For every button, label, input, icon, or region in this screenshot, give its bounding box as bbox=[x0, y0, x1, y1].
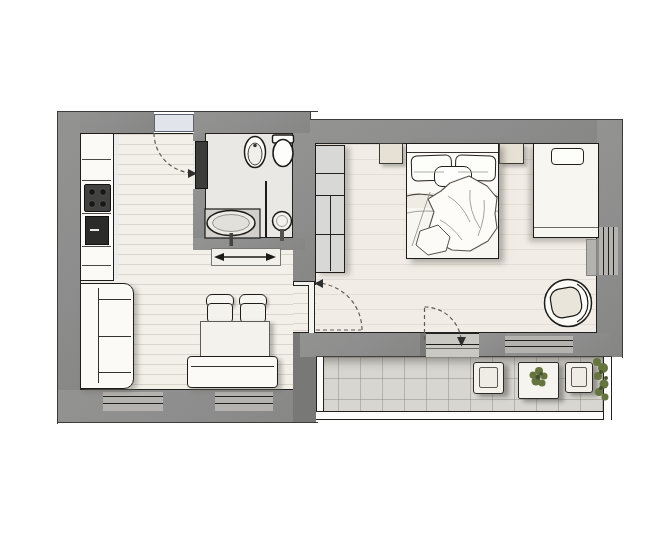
wall-south-bedroom-a bbox=[300, 333, 420, 357]
cooktop bbox=[84, 184, 111, 212]
cabinet-divider bbox=[82, 180, 111, 181]
shelf-line bbox=[316, 173, 344, 174]
sofa-seat-divider bbox=[98, 336, 131, 337]
counter-edge-highlight bbox=[114, 135, 119, 279]
outer-edge-right bbox=[622, 119, 623, 358]
bedroom-window-south bbox=[505, 336, 573, 353]
window-frame-line bbox=[613, 227, 614, 275]
dining-table bbox=[200, 321, 270, 357]
headboard-line bbox=[407, 152, 498, 153]
bathroom-door-leaf bbox=[195, 141, 208, 189]
living-window-1 bbox=[103, 392, 163, 411]
shelf-divider bbox=[330, 195, 331, 271]
wall-west bbox=[58, 112, 80, 423]
bedroom-window-east bbox=[599, 227, 618, 275]
balcony-rail-bottom bbox=[316, 411, 612, 420]
cabinet-divider bbox=[82, 246, 111, 247]
floor-plan bbox=[0, 0, 670, 550]
outer-edge-left bbox=[57, 111, 58, 424]
sofa bbox=[80, 283, 134, 389]
living-window-2 bbox=[215, 392, 273, 411]
cushion bbox=[479, 367, 498, 388]
window-frame-line bbox=[608, 227, 609, 275]
room-bathroom bbox=[205, 133, 293, 238]
balcony-door-threshold bbox=[426, 333, 479, 357]
balcony-door-closed-leaf bbox=[426, 344, 479, 346]
dining-chair-seat bbox=[240, 303, 266, 323]
dining-chair-seat bbox=[207, 303, 233, 323]
burner bbox=[99, 200, 107, 208]
nightstand-right bbox=[499, 143, 524, 164]
bench bbox=[187, 356, 278, 388]
window-frame-line bbox=[103, 403, 163, 404]
outer-edge-step bbox=[310, 111, 311, 120]
daybed-foot-line bbox=[534, 227, 598, 228]
burner bbox=[88, 200, 96, 208]
cabinet-divider bbox=[82, 265, 111, 266]
wall-divider bbox=[293, 133, 315, 285]
cabinet-divider bbox=[82, 159, 111, 160]
cushion bbox=[571, 367, 587, 387]
bedroom-door-leaf bbox=[308, 285, 315, 333]
wall-bath-left-upper bbox=[193, 133, 205, 141]
wardrobe-shelving bbox=[315, 145, 345, 273]
burner bbox=[88, 188, 96, 196]
cabinet-divider bbox=[82, 213, 111, 214]
wall-south-left bbox=[58, 390, 316, 423]
radiator bbox=[586, 239, 597, 276]
console-sideboard bbox=[211, 248, 281, 266]
wall-south-bedroom-b bbox=[478, 333, 505, 357]
outer-edge-top-right bbox=[310, 119, 623, 120]
window-frame-line bbox=[603, 227, 604, 275]
sofa-armrest-line bbox=[98, 299, 131, 300]
window-frame-line bbox=[215, 396, 273, 397]
threshold-line bbox=[426, 348, 479, 349]
oven bbox=[85, 216, 109, 245]
double-bed bbox=[406, 143, 499, 259]
window-frame-line bbox=[505, 346, 573, 347]
burner bbox=[99, 188, 107, 196]
sofa-armrest-line bbox=[98, 372, 131, 373]
pillow bbox=[551, 148, 584, 165]
balcony-lounge-chair bbox=[473, 362, 504, 394]
entrance-door-leaf bbox=[154, 114, 194, 132]
oven-handle bbox=[90, 229, 99, 231]
window-frame-line bbox=[215, 403, 273, 404]
nightstand-left bbox=[379, 143, 403, 164]
wall-top-right bbox=[310, 120, 623, 143]
wall-top-mid bbox=[194, 112, 310, 133]
balcony-lounge-chair bbox=[565, 362, 593, 393]
duvet bbox=[407, 193, 497, 258]
daybed bbox=[533, 143, 599, 238]
window-frame-line bbox=[103, 396, 163, 397]
threshold-line bbox=[426, 333, 479, 334]
balcony-rail-right bbox=[603, 357, 612, 420]
outer-edge-bottom bbox=[57, 422, 318, 423]
balcony-side-table bbox=[518, 362, 559, 399]
outer-edge-top bbox=[57, 111, 318, 112]
duvet-fold bbox=[407, 193, 497, 208]
accent-pillow bbox=[434, 166, 472, 187]
window-frame-line bbox=[505, 340, 573, 341]
bench-seat-line bbox=[191, 366, 274, 367]
